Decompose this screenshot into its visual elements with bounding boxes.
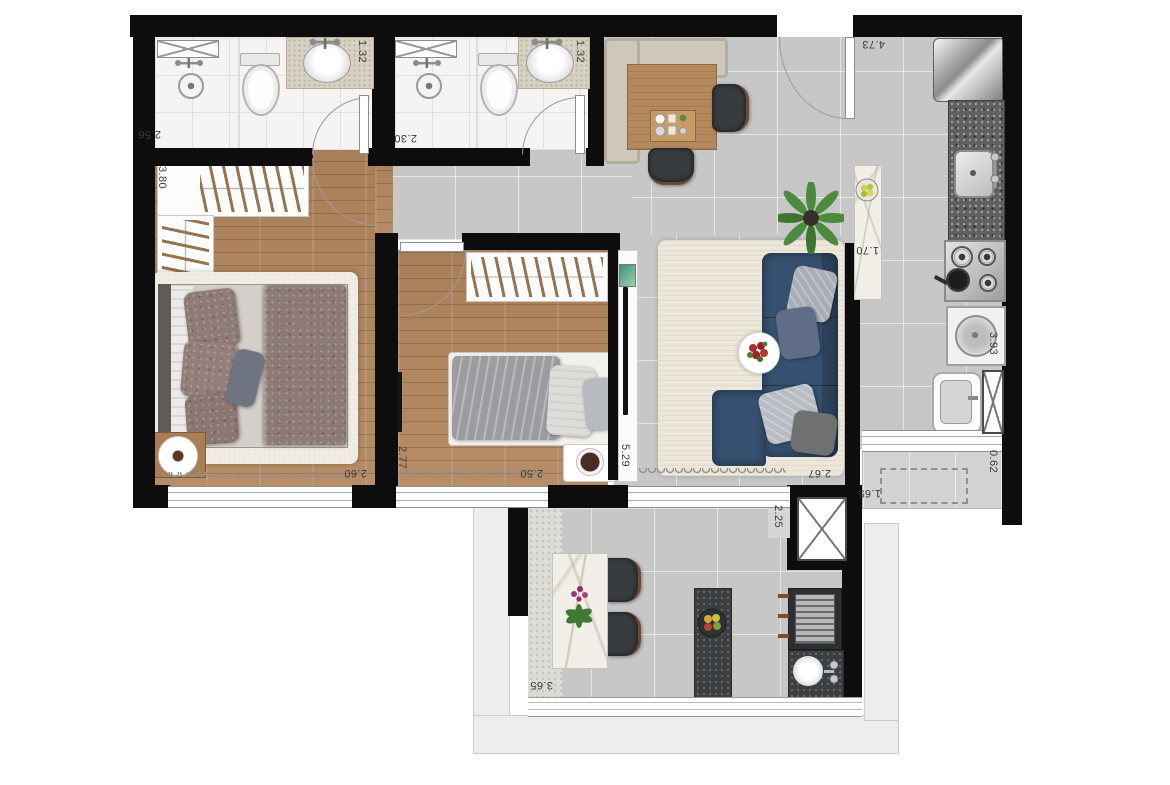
fridge	[933, 38, 1003, 102]
wall-top-right	[853, 15, 1022, 37]
stove-burner-icon	[951, 246, 973, 268]
wall-left	[133, 15, 155, 508]
bath1-shower-drain	[178, 73, 204, 99]
hanger-rail-icon	[200, 165, 304, 212]
wall-bath-divider	[372, 15, 395, 165]
living-tv	[623, 287, 628, 415]
dim-balcony-width: 3.65	[530, 679, 553, 690]
bath2-vent	[395, 40, 457, 58]
sink-drain-icon	[970, 170, 976, 176]
hanger-rail-icon	[162, 220, 209, 274]
dining-chair	[712, 84, 749, 132]
tank-faucet-icon	[968, 396, 978, 400]
wall-art	[619, 264, 636, 287]
bedroom2-tv	[397, 372, 402, 432]
ac-condenser-outline	[880, 468, 968, 504]
bedroom1-curtain	[162, 472, 350, 481]
bedroom1-window	[168, 486, 352, 508]
stove-burner-icon	[979, 274, 997, 292]
dim-bath1-depth: 2.56	[138, 128, 161, 139]
laundry-window	[862, 430, 1002, 452]
dim-living-width: 2.67	[808, 467, 831, 478]
floor-plan: 1.32 2.56 1.32 2.30 4.73 3.80 1.70 3.93 …	[0, 0, 1170, 785]
orchid-icon	[558, 582, 600, 630]
dim-bath1-width: 1.32	[356, 40, 367, 63]
bath1-shower-head-icon	[174, 56, 204, 70]
wall-bedroom2-top	[462, 233, 613, 250]
flower-bouquet-icon	[744, 338, 772, 366]
wall-below-bath2	[395, 148, 530, 166]
dim-bedroom1-width: 2.60	[344, 467, 367, 478]
bedroom1-headboard	[158, 284, 171, 446]
wall-balcony-right	[842, 565, 862, 717]
dim-island-length: 1.70	[856, 244, 879, 255]
dim-bedroom2-depth: 2.77	[396, 446, 407, 469]
dim-service-ledge-width: 1.65	[858, 487, 881, 498]
frying-pan-icon	[946, 268, 970, 292]
tank-basin	[940, 380, 972, 424]
balcony-counter	[694, 588, 732, 698]
bedroom1-duvet	[262, 285, 346, 445]
bedroom1-wardrobe-side	[157, 215, 214, 279]
dim-living-length: 5.29	[619, 444, 630, 467]
sofa-pillow	[789, 409, 838, 457]
dim-kitchen-run: 3.93	[987, 332, 998, 355]
kitchen-faucet-icon	[988, 152, 1002, 192]
wall-top-left	[130, 15, 777, 37]
balcony-railing	[528, 697, 862, 717]
entry-door-leaf	[845, 37, 855, 119]
laundry-duct	[982, 370, 1004, 434]
bedroom2-door-leaf	[400, 242, 464, 252]
dim-bedroom2-width: 2.50	[520, 467, 543, 478]
bedroom2-window	[396, 486, 548, 508]
bath1-vent	[157, 40, 219, 58]
slab-right	[864, 523, 899, 721]
dim-duct-width: 2.25	[772, 505, 783, 528]
shaft-duct	[797, 497, 847, 561]
grill-grate-icon	[795, 594, 835, 644]
dining-chair	[648, 148, 694, 185]
dim-service-ledge-depth: 0.62	[987, 450, 998, 473]
wall-below-bath2-stub	[586, 148, 604, 166]
wall-below-bath1	[133, 148, 313, 166]
bath2-door-leaf	[575, 95, 585, 154]
slab-bottom	[473, 715, 899, 754]
bath2-shower-drain	[416, 73, 442, 99]
cups-icon	[652, 112, 692, 138]
grill-handle-icon	[778, 614, 789, 618]
living-window	[628, 486, 790, 508]
dim-bath2-depth: 2.30	[394, 132, 417, 143]
bedroom1-wardrobe	[157, 160, 309, 217]
bedroom2-decor-tray	[576, 448, 604, 476]
washer-knob-icon	[972, 332, 978, 338]
bbq-faucet-icon	[822, 658, 838, 688]
bath1-faucet-icon	[308, 36, 342, 50]
grill-handle-icon	[778, 634, 789, 638]
stove-burner-icon	[978, 248, 996, 266]
fruit-bowl-icon	[855, 178, 879, 202]
wall-bottom-2	[352, 485, 398, 508]
dim-entry-hall-length: 4.73	[862, 38, 885, 49]
sofa-pillow	[775, 305, 822, 360]
bbq-sink	[793, 656, 823, 686]
bedroom2-duvet	[452, 356, 560, 440]
bath2-shower-head-icon	[412, 56, 442, 70]
laundry-tank	[932, 372, 982, 434]
bath2-faucet-icon	[530, 36, 564, 50]
dim-bath2-width: 1.32	[574, 40, 585, 63]
balcony-fruit-bowl-icon	[697, 608, 727, 638]
hanger-rail-icon	[471, 257, 603, 297]
wall-bottom-1	[133, 485, 170, 508]
bbq-grill	[788, 588, 842, 650]
wall-bottom-3	[548, 485, 628, 508]
dim-bedroom1-depth: 3.80	[156, 166, 167, 189]
slab-left	[473, 502, 510, 719]
living-curtain	[630, 468, 786, 477]
record-player-icon	[158, 436, 198, 476]
bedroom2-wardrobe	[466, 252, 608, 302]
grill-handle-icon	[778, 594, 789, 598]
wall-balcony-left	[508, 500, 528, 616]
wall-bath2-right	[588, 15, 604, 165]
fern-plant-icon	[778, 182, 844, 254]
bath1-door-leaf	[359, 95, 369, 154]
wall-bedroom-divider	[375, 233, 398, 508]
